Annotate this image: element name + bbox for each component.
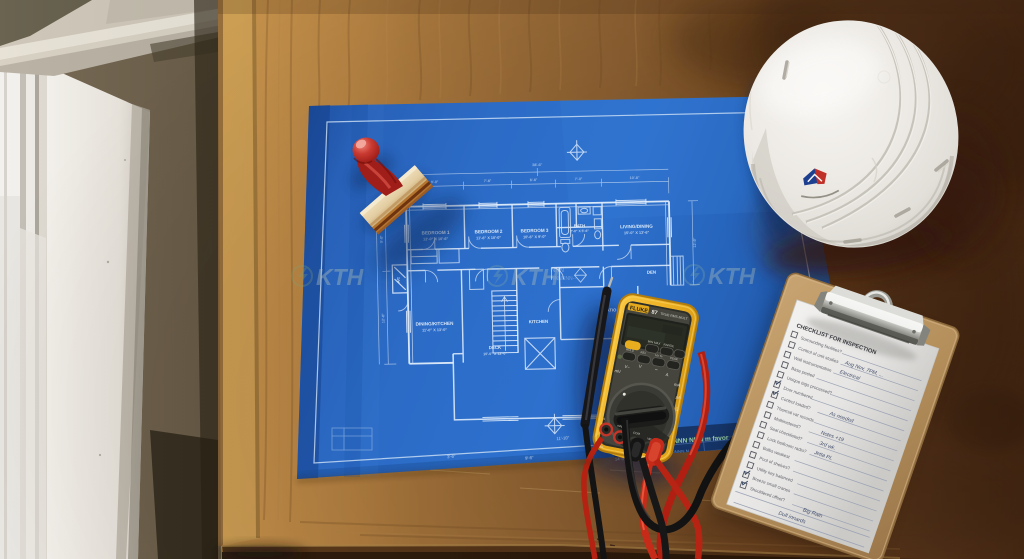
svg-text:9'-6": 9'-6": [380, 235, 384, 243]
svg-text:7'-0": 7'-0": [575, 177, 583, 181]
svg-text:7'-6": 7'-6": [484, 179, 492, 183]
svg-text:NNNNNN--: NNNNNN--: [551, 276, 576, 282]
svg-text:BATH: BATH: [574, 223, 585, 228]
svg-text:LIVING/DINING: LIVING/DINING: [620, 224, 653, 230]
svg-text:10'-6": 10'-6": [630, 176, 640, 180]
svg-text:10'-6" X 9'-0": 10'-6" X 9'-0": [523, 235, 546, 239]
svg-text:9'-0": 9'-0": [431, 180, 439, 184]
svg-text:DINING/KITCHEN: DINING/KITCHEN: [416, 321, 455, 327]
svg-text:87: 87: [651, 309, 658, 316]
svg-text:10'-0" X 12'-0": 10'-0" X 12'-0": [483, 352, 507, 357]
svg-text:KITCHEN: KITCHEN: [529, 319, 549, 324]
svg-text:6'-6": 6'-6": [530, 178, 538, 182]
svg-text:11'-0" X 13'-0": 11'-0" X 13'-0": [422, 328, 447, 333]
svg-text:BEDROOM 3: BEDROOM 3: [521, 228, 549, 234]
svg-text:11'-10": 11'-10": [556, 435, 570, 441]
svg-text:38'-6": 38'-6": [532, 162, 543, 167]
svg-text:A/C: A/C: [396, 276, 400, 283]
svg-text:12'-6": 12'-6": [693, 237, 697, 247]
svg-text:15'-0" X 13'-6": 15'-0" X 13'-6": [624, 231, 650, 236]
svg-text:12'-6": 12'-6": [381, 313, 385, 323]
svg-text:3'-6": 3'-6": [447, 454, 456, 460]
svg-text:DEN: DEN: [647, 270, 656, 275]
svg-text:NNN: NNN: [551, 268, 564, 274]
svg-text:9'-6": 9'-6": [525, 455, 534, 461]
svg-text:11'-6" X 10'-0": 11'-6" X 10'-0": [476, 236, 501, 241]
svg-text:KTH: KTH: [316, 264, 364, 290]
svg-text:7'-0" X 5'-6": 7'-0" X 5'-6": [570, 229, 589, 233]
svg-text:KTH: KTH: [708, 263, 756, 289]
svg-text:DECK: DECK: [489, 345, 502, 350]
svg-text:BEDROOM 2: BEDROOM 2: [475, 229, 503, 235]
